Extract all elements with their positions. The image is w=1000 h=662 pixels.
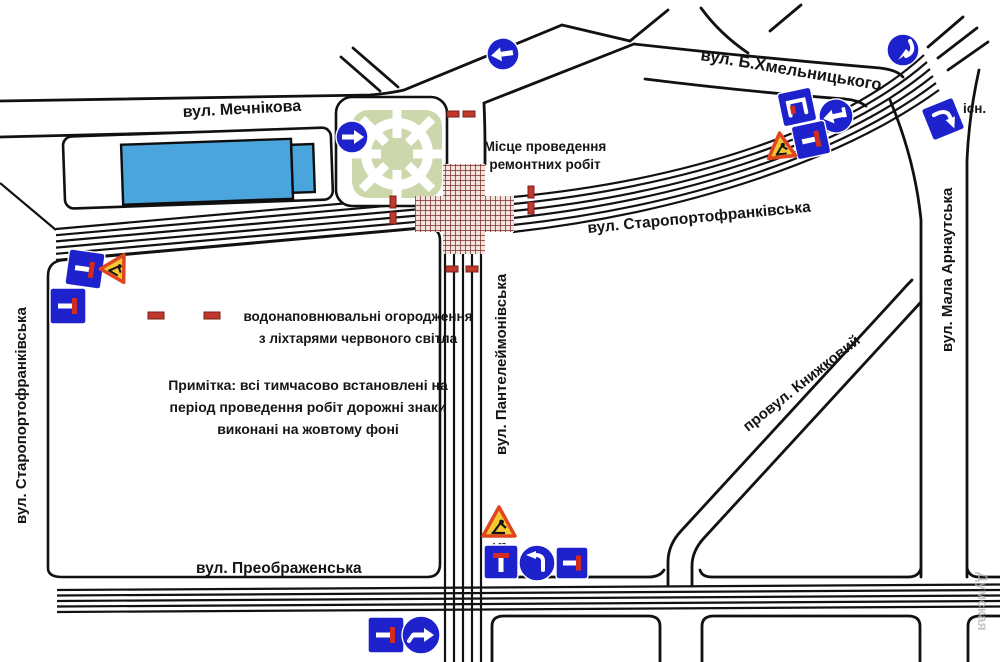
road-stub-top-2: [770, 5, 801, 31]
barrier-dash: [528, 202, 534, 214]
barrier-dash: [446, 266, 458, 272]
barrier-dash: [447, 111, 459, 117]
dead-end-detour-sign-icon: [791, 120, 831, 160]
road-knyzhkovyi-west-edge: [668, 280, 912, 586]
street-label-preobrazhenska: вул. Преображенська: [196, 560, 362, 577]
road-preobrazhenska-edge-2: [700, 568, 921, 577]
roadworks-warning-sign-icon: [483, 507, 515, 536]
street-label-panteleimonivska: вул. Пантелеймонівська: [493, 273, 510, 455]
barrier-dash: [528, 186, 534, 198]
road-bottom-band: [57, 585, 1000, 613]
repair-site-label-line1: Місце проведення: [484, 139, 607, 154]
road-mechnikova-north-edge: [0, 25, 630, 101]
legend-text-line1: водонаповнювальні огородження: [243, 309, 472, 324]
building-block: [63, 127, 333, 208]
road-repair-scheme-map: 1.37 вул. Мечнікова вул. Б.Хмельницького…: [0, 0, 1000, 662]
existing-sign-label: існ.: [963, 101, 986, 116]
road-south-block-edge-2: [702, 616, 920, 662]
legend-dash-icon: [148, 312, 164, 319]
dead-end-detour-sign-icon: [484, 545, 518, 579]
street-label-staroportofrankivska: вул. Старопортофранківська: [587, 199, 812, 237]
street-label-staroportofrankivska-west: вул. Старопортофранківська: [13, 307, 30, 524]
road-knyzhkovyi-east-edge: [692, 302, 921, 586]
roadworks-warning-sign-icon: [766, 132, 795, 159]
street-label-mala-arnautska: вул. Мала Арнаутська: [939, 187, 956, 352]
barrier-dash: [390, 212, 396, 224]
dead-end-detour-sign-icon: [50, 288, 86, 324]
note-line3: виконані на жовтому фоні: [217, 421, 399, 437]
mandatory-left-sign-icon: [485, 36, 521, 72]
detour-curve-sign-icon: [921, 97, 965, 141]
merge-right-sign-icon: [402, 616, 440, 654]
street-label-mechnikova: вул. Мечнікова: [182, 98, 301, 121]
road-stub-nw-2: [353, 48, 398, 87]
barrier-dash: [463, 111, 475, 117]
barrier-dash: [390, 196, 396, 208]
dead-end-detour-sign-icon: [368, 617, 404, 653]
legend-dash-icon: [204, 312, 220, 319]
curved-direction-sign-icon: [887, 34, 919, 66]
road-mala-arnautska-east-edge: [967, 70, 979, 577]
building-annex: [291, 144, 315, 193]
turn-left-sign-icon: [519, 545, 555, 581]
street-label-khmelnytskoho: вул. Б.Хмельницького: [699, 46, 883, 94]
detour-scheme-sign-icon: [777, 87, 817, 127]
legend-text-line2: з ліхтарями червоного світла: [259, 331, 458, 346]
park-flower-pattern: [347, 104, 447, 204]
mandatory-right-sign-icon: [336, 121, 368, 153]
note-line2: період проведення робіт дорожні знаки: [170, 399, 447, 415]
road-stub-nw-1: [341, 57, 380, 91]
dead-end-detour-sign-icon: [556, 547, 588, 579]
note-line1: Примітка: всі тимчасово встановлені на: [168, 377, 448, 393]
building-footprint: [121, 139, 293, 205]
watermark: Думская: [975, 572, 991, 631]
repair-site-label-line2: ремонтних робіт: [489, 157, 601, 172]
road-mala-arnautska-west-edge: [890, 100, 921, 577]
road-junction-branch: [630, 10, 668, 41]
road-south-block-edge-1: [492, 616, 660, 662]
barrier-dash: [466, 266, 478, 272]
